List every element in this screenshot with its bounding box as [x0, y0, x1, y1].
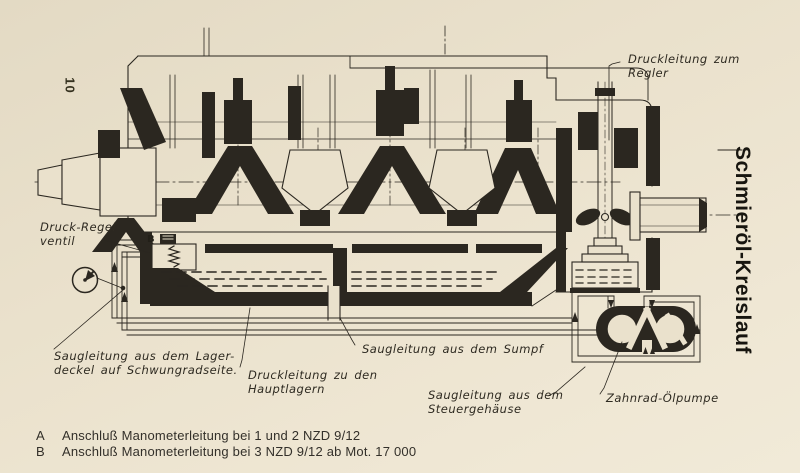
pushrods [170, 70, 471, 148]
legend: A Anschluß Manometerleitung bei 1 und 2 … [36, 428, 416, 460]
label-saugleitung-steuergehaeuse: Saugleitung aus dem Steuergehäuse [428, 389, 564, 416]
governor-drive [556, 82, 707, 293]
oil-sump [150, 248, 568, 320]
legend-key-a: A [36, 428, 62, 443]
legend-key-b: B [36, 444, 62, 459]
label-druckleitung-regler: Druckleitung zum Regler [628, 53, 740, 80]
page-number: 10 [63, 77, 78, 93]
oil-level [162, 272, 498, 286]
scanned-manual-page: 10 Schmieröl-Kreislauf Druckleitung zum … [0, 0, 800, 473]
legend-row-a: A Anschluß Manometerleitung bei 1 und 2 … [36, 428, 416, 443]
legend-text-a: Anschluß Manometerleitung bei 1 und 2 NZ… [62, 428, 360, 443]
oil-gallery [205, 244, 542, 253]
label-druckleitung-hauptlager: Druckleitung zu den Hauptlagern [248, 369, 378, 396]
label-zahnrad-oelpumpe: Zahnrad-Ölpumpe [606, 392, 719, 406]
label-druck-regelventil: Druck-Regel- ventil [40, 221, 121, 248]
left-crankshaft-end [38, 148, 156, 216]
legend-text-b: Anschluß Manometerleitung bei 3 NZD 9/12… [62, 444, 416, 459]
label-saugleitung-sumpf: Saugleitung aus dem Sumpf [362, 343, 543, 357]
valve-marker-b: B [147, 234, 155, 245]
page-title: Schmieröl-Kreislauf [730, 146, 754, 396]
crankshaft-webs [186, 66, 560, 214]
label-saugleitung-lagerdeckel: Saugleitung aus dem Lager- deckel auf Sc… [54, 350, 238, 377]
legend-row-b: B Anschluß Manometerleitung bei 3 NZD 9/… [36, 444, 416, 459]
gear-oil-pump [596, 306, 696, 354]
